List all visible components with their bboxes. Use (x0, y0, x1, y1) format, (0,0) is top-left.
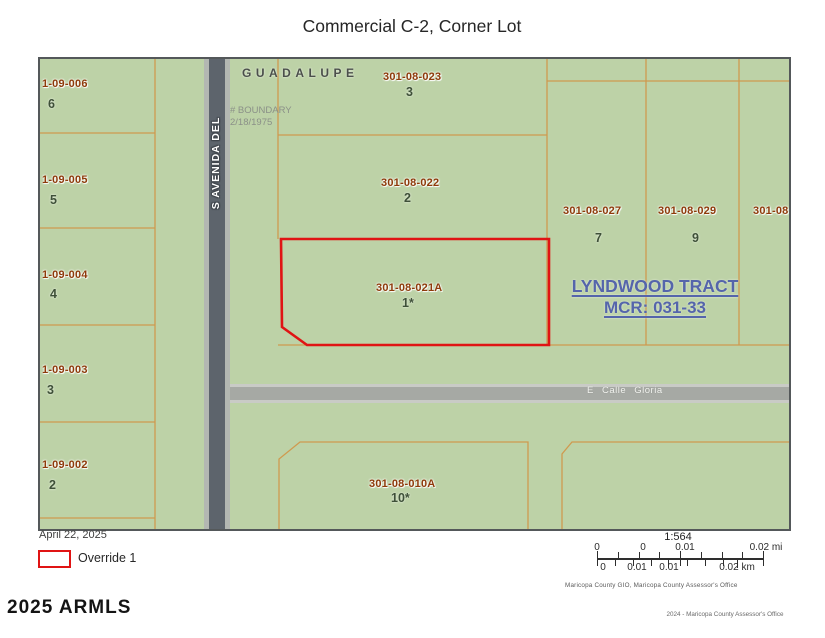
tract-name: LYNDWOOD TRACT (530, 278, 780, 296)
parcel-apn-label: 1-09-003 (42, 365, 88, 376)
page-title: Commercial C-2, Corner Lot (303, 16, 522, 37)
scale-label: 0.01 (675, 542, 694, 553)
export-date-label: April 22, 2025 (39, 529, 107, 541)
legend-override-swatch (38, 550, 71, 568)
copyright-label: 2024 - Maricopa County Assessor's Office (667, 611, 784, 618)
parcel-apn-label: 1-09-006 (42, 79, 88, 90)
scale-tick (763, 551, 764, 566)
scale-label: 0.01 (659, 562, 678, 573)
tract-label: LYNDWOOD TRACT MCR: 031-33 (530, 278, 780, 316)
parcel-apn-label: 301-08-010A (369, 479, 435, 490)
boundary-note: # BOUNDARY 2/18/1975 (230, 105, 292, 129)
calle-gloria-road-band (230, 387, 789, 400)
map-credit: Maricopa County GIO, Maricopa County Ass… (565, 582, 738, 589)
scale-tick (597, 551, 598, 566)
parcel-lot-number: 2 (404, 192, 411, 205)
street-label-guadalupe: GUADALUPE (242, 67, 359, 79)
map-export-page: Commercial C-2, Corner Lot (0, 0, 825, 638)
parcel-lot-number: 4 (50, 288, 57, 301)
parcel-lot-number: 7 (595, 232, 602, 245)
tract-mcr: MCR: 031-33 (530, 299, 780, 316)
parcel-lot-number: 3 (47, 384, 54, 397)
scale-tick (618, 552, 619, 559)
street-label-avenida-del: S AVENIDA DEL (211, 117, 222, 210)
parcel-apn-label: 301-08-022 (381, 178, 439, 189)
scale-tick (680, 551, 681, 566)
scale-tick (659, 552, 660, 559)
scale-label: 0.01 (627, 562, 646, 573)
scale-tick (742, 552, 743, 559)
boundary-note-line1: # BOUNDARY (230, 105, 292, 117)
scale-tick (615, 559, 616, 566)
parcel-apn-label: 1-09-004 (42, 270, 88, 281)
parcel-lot-number: 5 (50, 194, 57, 207)
parcel-lot-number: 10* (391, 492, 410, 505)
scale-tick (639, 552, 640, 559)
boundary-note-line2: 2/18/1975 (230, 117, 292, 129)
parcel-apn-label: 301-08-021A (376, 283, 442, 294)
scale-tick (701, 552, 702, 559)
scale-tick (651, 559, 652, 566)
parcel-lot-number: 2 (49, 479, 56, 492)
scale-label: 0.02 km (719, 562, 755, 573)
scale-tick (687, 559, 688, 566)
legend-override-label: Override 1 (78, 551, 136, 565)
parcel-apn-label: 301-08-023 (383, 72, 441, 83)
parcel-apn-label: 301-08-027 (563, 206, 621, 217)
parcel-lot-number: 6 (48, 98, 55, 111)
scale-label: 0.02 mi (750, 542, 783, 553)
parcel-apn-label: 301-08-029 (658, 206, 716, 217)
street-label-calle-gloria: E Calle Gloria (587, 386, 663, 396)
parcel-map: GUADALUPE S AVENIDA DEL E Calle Gloria #… (38, 57, 791, 531)
armls-watermark: 2025 ARMLS (7, 597, 131, 619)
scale-label: 0 (600, 562, 606, 573)
parcel-apn-label: 301-08-0 (753, 206, 791, 217)
parcel-apn-label: 1-09-005 (42, 175, 88, 186)
scale-tick (722, 552, 723, 559)
parcel-apn-label: 1-09-002 (42, 460, 88, 471)
parcel-lot-number: 1* (402, 297, 414, 310)
scale-tick (705, 559, 706, 566)
scale-label: 0 (640, 542, 646, 553)
parcel-lot-number: 9 (692, 232, 699, 245)
parcel-lot-number: 3 (406, 86, 413, 99)
